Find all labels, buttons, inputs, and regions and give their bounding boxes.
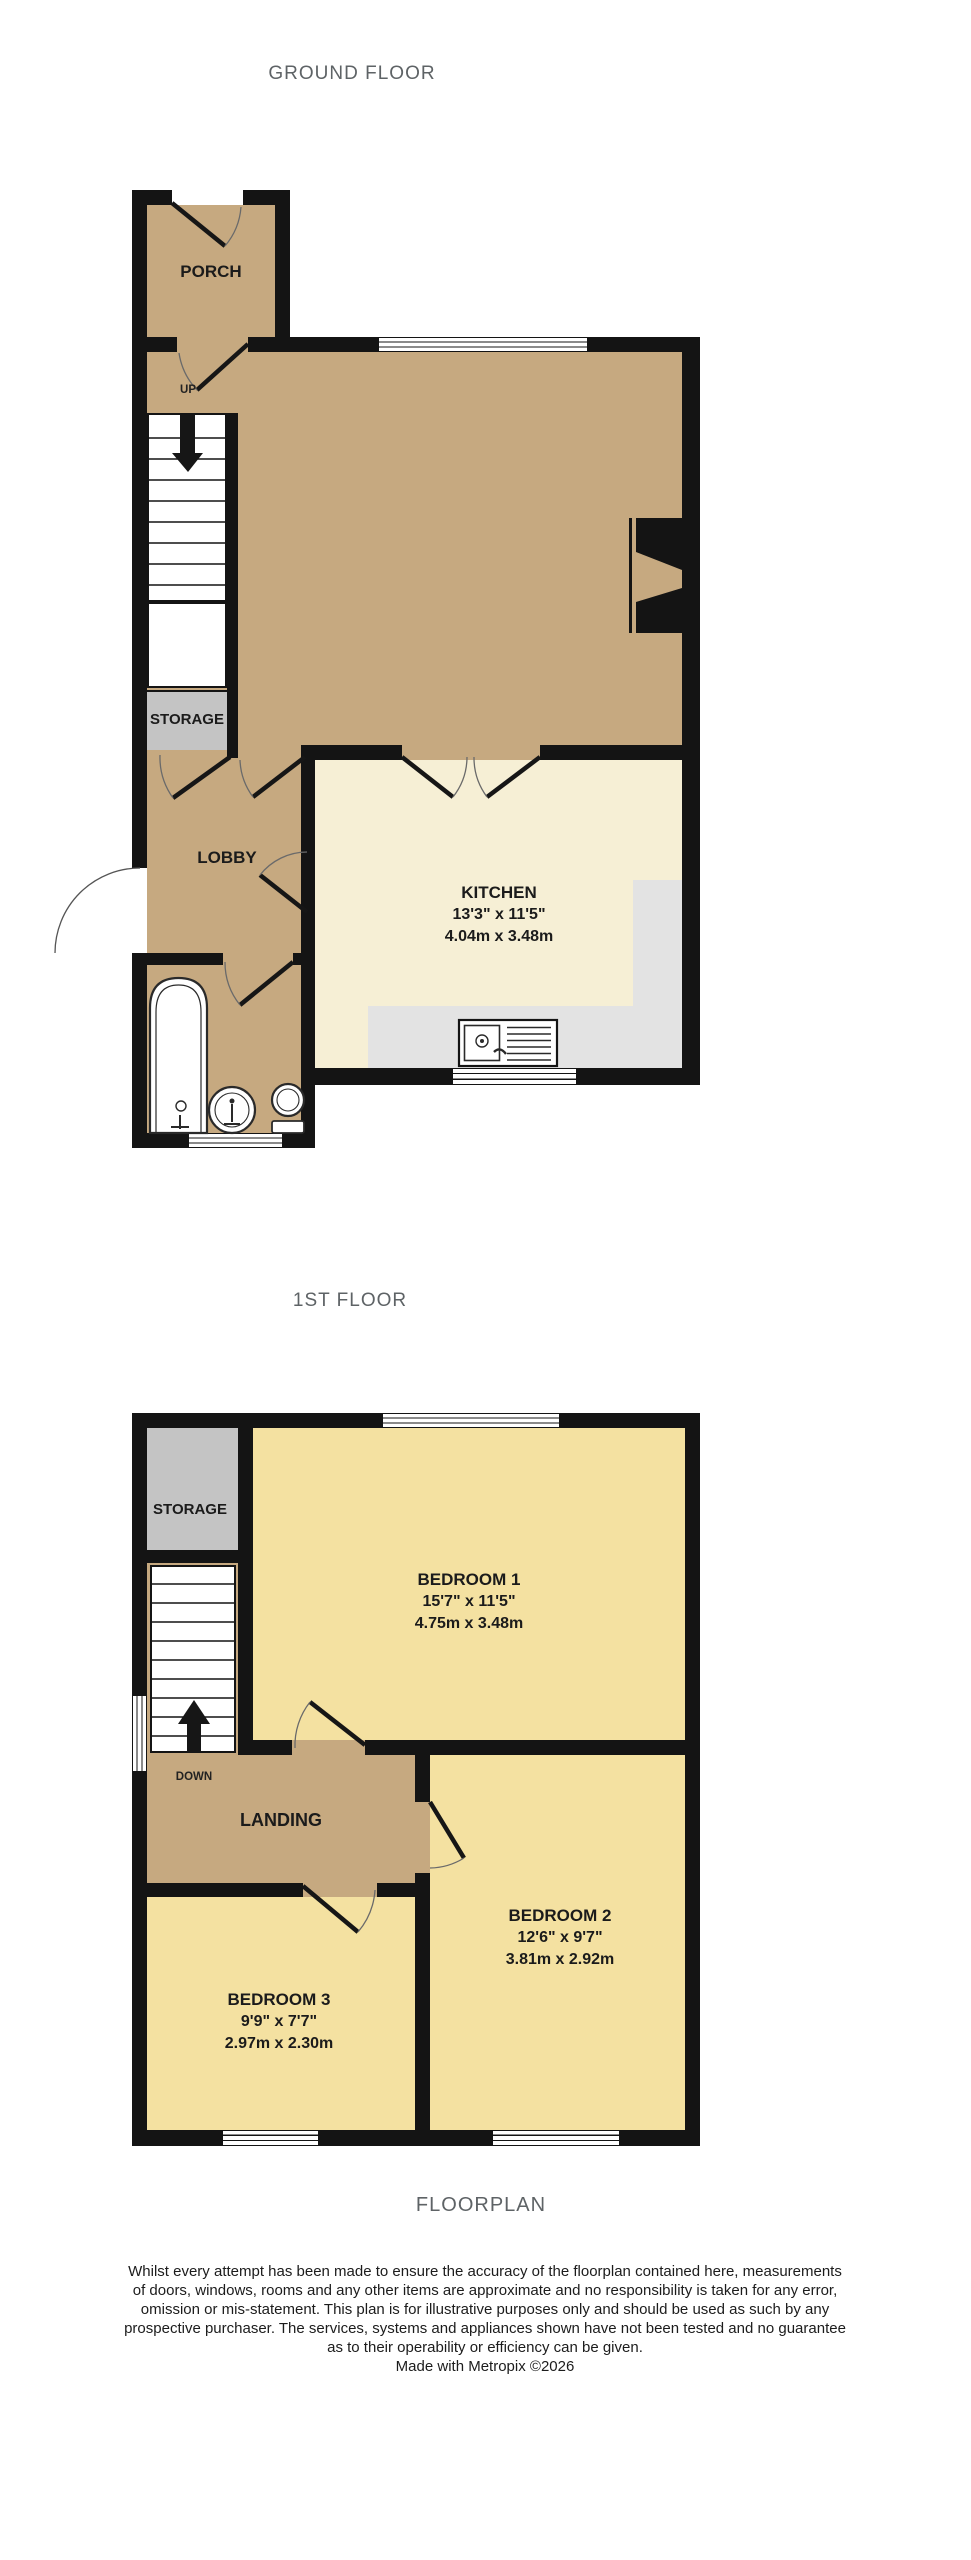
- metropix-credit: Made with Metropix ©2026: [35, 2357, 935, 2376]
- bedroom1-label: BEDROOM 1 15'7" x 11'5" 4.75m x 3.48m: [415, 1569, 524, 1635]
- bedroom3-door: [303, 1886, 375, 1932]
- bedroom3-label: BEDROOM 3 9'9" x 7'7" 2.97m x 2.30m: [225, 1989, 334, 2055]
- stairs-up-arrow-icon: [178, 1700, 210, 1753]
- stairs-down-label: DOWN: [176, 1771, 212, 1783]
- toilet: [272, 1084, 304, 1133]
- floorplan-page: GROUND FLOOR 1ST FLOOR FLOORPLAN: [0, 0, 971, 2560]
- kitchen-label: KITCHEN 13'3" x 11'5" 4.04m x 3.48m: [445, 882, 554, 948]
- bathtub: [150, 978, 207, 1133]
- porch-entry-door: [172, 203, 241, 246]
- disclaimer-text: Whilst every attempt has been made to en…: [35, 2262, 935, 2376]
- stairs-down-arrow-icon: [172, 415, 203, 472]
- bathroom-door: [225, 962, 293, 1005]
- plan-overlay: [0, 0, 971, 2560]
- storage-door: [160, 755, 230, 798]
- first-storage-label: STORAGE: [153, 1499, 227, 1521]
- lobby-label: LOBBY: [197, 847, 257, 869]
- porch-label: PORCH: [180, 261, 241, 283]
- ground-storage-label: STORAGE: [150, 709, 224, 731]
- lobby-kitchen-door: [260, 852, 307, 912]
- kitchen-double-doors: [402, 757, 540, 797]
- kitchen-sink: [459, 1020, 557, 1066]
- bedroom1-door: [295, 1702, 365, 1748]
- front-door-arc: [55, 868, 140, 953]
- landing-label: LANDING: [240, 1809, 322, 1831]
- lobby-door: [240, 757, 305, 797]
- bedroom2-door: [430, 1802, 464, 1868]
- bathroom-sink: [209, 1087, 255, 1133]
- fireplace: [629, 518, 682, 633]
- stairs-up-label: UP: [180, 384, 196, 396]
- bedroom2-label: BEDROOM 2 12'6" x 9'7" 3.81m x 2.92m: [506, 1905, 615, 1971]
